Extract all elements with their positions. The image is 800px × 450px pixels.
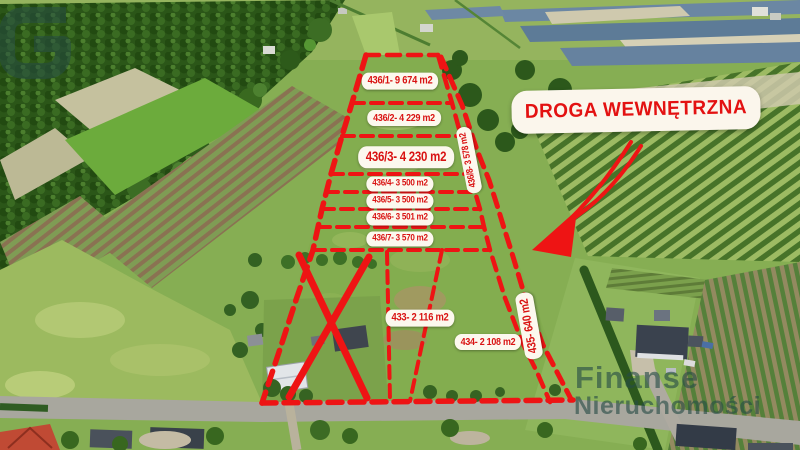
- brand-name-line2: Nieruchomości: [574, 392, 761, 421]
- parcel-label-436-6: 436/6- 3 501 m2: [366, 211, 433, 226]
- parcel-label-436-1: 436/1- 9 674 m2: [362, 73, 439, 90]
- road-callout: DROGA WEWNĘTRZNA: [511, 86, 761, 134]
- parcel-label-436-7: 436/7- 3 570 m2: [366, 232, 433, 247]
- brand-logo-icon: [0, 0, 80, 90]
- parcel-label-436-5: 436/5- 3 500 m2: [366, 194, 433, 209]
- listing-image: 436/1- 9 674 m2 436/2- 4 229 m2 436/3- 4…: [0, 0, 800, 450]
- sold-x-mark: [289, 255, 369, 398]
- boundary-bottom: [262, 400, 573, 403]
- brand-name-line1: Finanse: [575, 360, 699, 396]
- road-arrow-head: [532, 210, 577, 257]
- parcel-label-436-2: 436/2- 4 229 m2: [367, 110, 441, 126]
- parcel-label-433: 433- 2 116 m2: [386, 310, 455, 327]
- parcel-label-436-3: 436/3- 4 230 m2: [358, 146, 454, 168]
- parcel-label-434: 434- 2 108 m2: [455, 334, 522, 350]
- parcel-label-436-4: 436/4- 3 500 m2: [366, 177, 433, 192]
